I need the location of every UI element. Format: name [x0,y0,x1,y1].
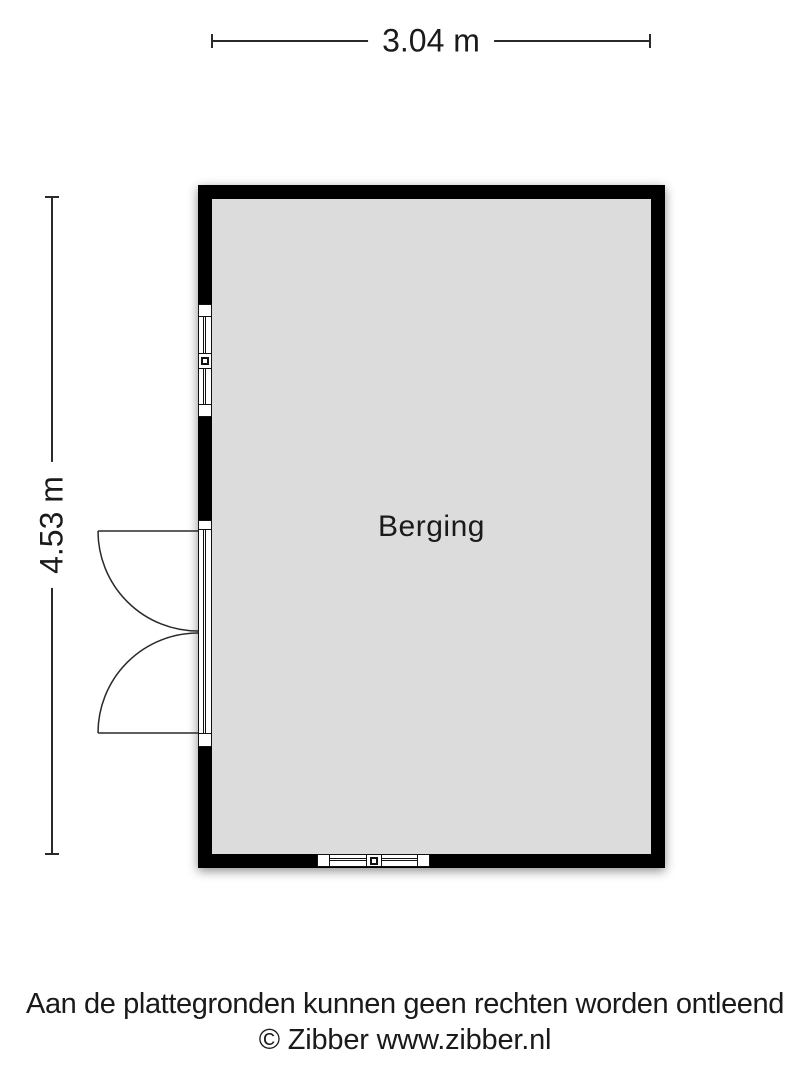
double-door-opening [198,520,212,747]
disclaimer-text: Aan de plattegronden kunnen geen rechten… [0,988,810,1021]
dimension-width-label: 3.04 m [368,23,494,60]
door-frame-end [198,520,212,530]
window-bottom-wall [317,854,430,867]
window-frame-end [317,854,330,867]
dimension-height-label: 4.53 m [34,462,71,588]
door-frame-end [198,733,212,747]
window-left-wall [198,304,212,417]
window-frame-end [198,404,212,417]
room-label: Berging [378,510,485,544]
dimension-height-tick-top [45,196,59,198]
dimension-width-tick-left [211,34,213,48]
window-mullion [198,353,212,369]
window-glass [198,369,212,405]
dimension-height-tick-bottom [45,853,59,855]
door-arc-top [98,531,198,631]
window-glass [382,854,418,867]
window-mullion-square [201,357,209,365]
window-frame-end [198,304,212,317]
floorplan-page: 3.04 m 4.53 m Berging [0,0,810,1080]
door-arc-bottom [98,633,198,733]
building-outline: Berging [198,185,665,868]
window-glass [198,317,212,353]
dimension-width-tick-right [649,34,651,48]
room-berging: Berging [212,199,651,854]
door-jamb-lines [198,530,212,733]
window-mullion [366,854,382,867]
window-glass [330,854,366,867]
copyright-text: © Zibber www.zibber.nl [0,1024,810,1057]
window-mullion-square [370,857,378,865]
window-frame-end [417,854,430,867]
